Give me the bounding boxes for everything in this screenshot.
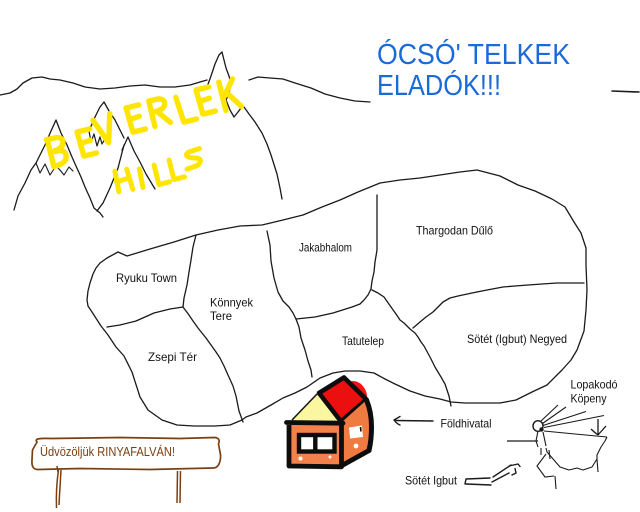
svg-text:Zsepi Tér: Zsepi Tér (148, 350, 197, 364)
svg-text:Jakabhalom: Jakabhalom (299, 241, 352, 255)
svg-text:Könnyek: Könnyek (210, 296, 254, 310)
svg-text:Köpeny: Köpeny (571, 392, 607, 406)
svg-text:ÓCSÓ' TELKEK: ÓCSÓ' TELKEK (377, 38, 571, 71)
svg-text:Üdvözöljük RINYAFALVÁN!: Üdvözöljük RINYAFALVÁN! (40, 444, 175, 459)
svg-text:ELADÓK!!!: ELADÓK!!! (377, 69, 501, 102)
svg-text:Tatutelep: Tatutelep (342, 334, 384, 348)
svg-text:Sötét (Igbut) Negyed: Sötét (Igbut) Negyed (467, 332, 567, 346)
svg-text:Thargodan Dűlő: Thargodan Dűlő (416, 224, 493, 238)
svg-text:Sötét Igbut: Sötét Igbut (405, 474, 458, 488)
svg-text:Lopakodó: Lopakodó (571, 377, 618, 391)
svg-text:Tere: Tere (210, 309, 232, 323)
svg-text:Földhivatal: Földhivatal (441, 417, 492, 431)
svg-text:Ryuku Town: Ryuku Town (116, 271, 177, 285)
